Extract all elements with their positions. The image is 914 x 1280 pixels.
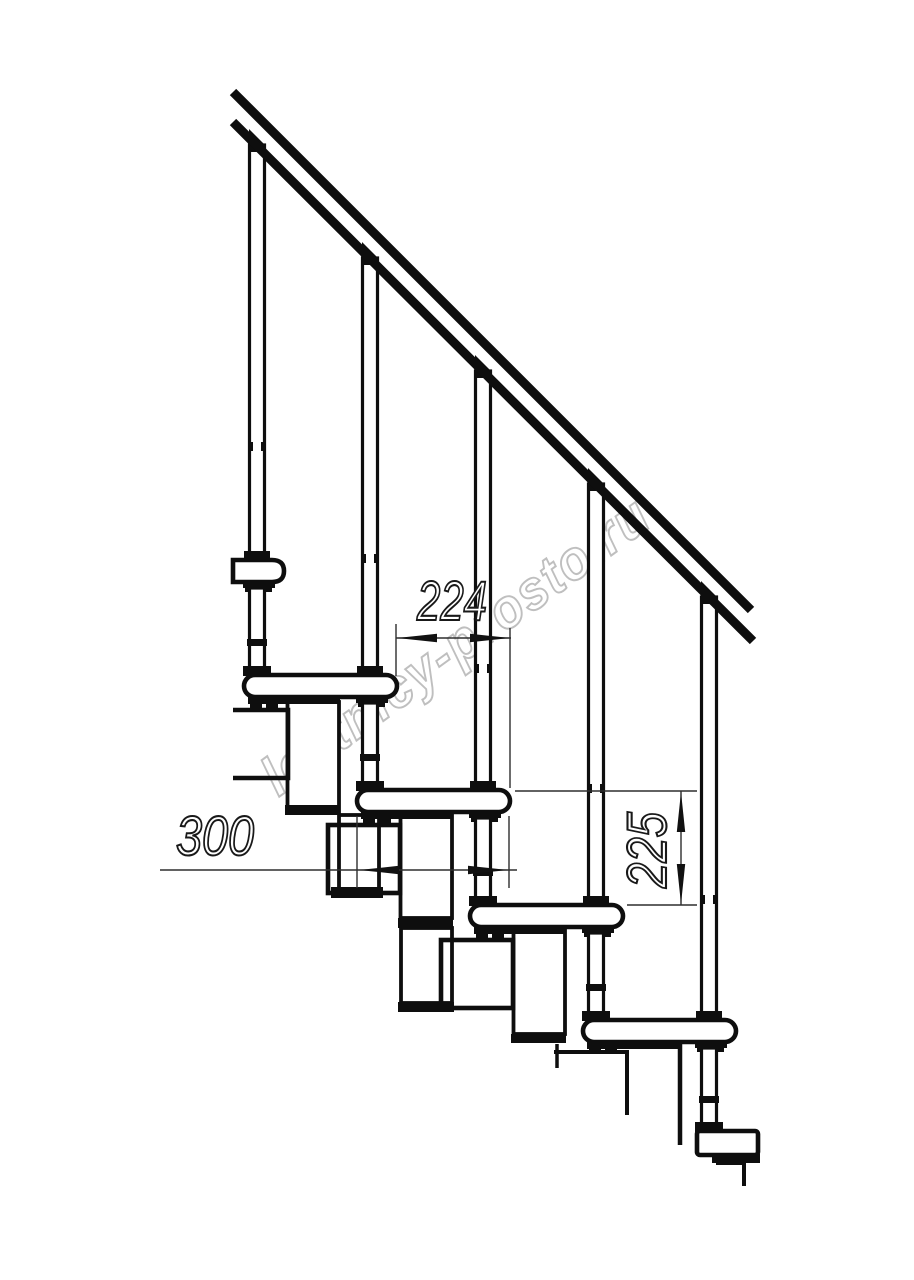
module-4-pipe-bar [511, 1034, 566, 1043]
staircase-technical-drawing: lestnicy-prosto.ru [0, 0, 914, 1280]
connector-tube-1-collar [247, 639, 267, 646]
tread-2-tail-nub [266, 703, 278, 709]
connector-tube-5-collar [699, 1096, 719, 1103]
floor-edge-line [716, 1163, 744, 1186]
handrail [233, 92, 753, 641]
baluster-2-foot [357, 666, 383, 676]
tread-5-plate [587, 1041, 679, 1049]
module-3-pipe-upper [401, 814, 453, 918]
tread-2-plate [248, 696, 340, 704]
connector-tube-3-foot [469, 896, 497, 906]
connector-tube-1 [250, 588, 265, 668]
tread-3 [357, 790, 510, 812]
connector-tube-2-foot [356, 781, 384, 791]
tread-3-tail-nub [379, 818, 391, 824]
tread-2 [244, 675, 397, 697]
module-5-box-top-partial [554, 1052, 627, 1115]
baluster-3-joint-core [479, 662, 487, 675]
dimension-225: 225 [515, 791, 697, 905]
baluster-2-joint-core [366, 552, 374, 565]
connector-tube-4-collar [586, 984, 606, 991]
module-2-pipe-bar [285, 805, 340, 815]
tread-5-tail-nub [605, 1048, 617, 1054]
baluster-3-foot [470, 781, 496, 791]
connector-tube-2-collar [360, 754, 380, 761]
dim-225-arrow-bottom [677, 864, 685, 904]
connector-tube-5 [702, 1048, 717, 1124]
module-4-pipe-upper [514, 929, 566, 1034]
connector-tube-3 [476, 818, 491, 898]
tread-4-tail-nub [492, 933, 504, 939]
baluster-5 [702, 597, 717, 1020]
baluster-2 [363, 258, 378, 675]
dim-225-arrow-top [677, 792, 685, 832]
dim-224-label: 224 [416, 569, 487, 632]
tread-4-plate [474, 926, 566, 934]
baluster-5-foot [696, 1011, 722, 1021]
floor-mount-block [697, 1131, 758, 1155]
connector-tube-4 [589, 933, 604, 1013]
module-2-pipe-upper [288, 702, 340, 813]
baluster-4-joint-core [592, 782, 600, 795]
dim-225-label: 225 [615, 811, 678, 889]
baluster-5-joint-core [705, 893, 713, 906]
tread-1 [233, 560, 284, 582]
tread-5-tail-nub [589, 1048, 601, 1054]
baluster-4 [589, 484, 604, 905]
tread-4-tail-nub [476, 933, 488, 939]
baluster-4-foot [583, 896, 609, 906]
tread-3-tail-nub [363, 818, 375, 824]
baluster-1-joint-core [253, 440, 261, 453]
drawing-page: lestnicy-prosto.ru [0, 0, 914, 1280]
connector-tube-1-foot [243, 666, 271, 676]
tread-3-plate [361, 811, 453, 819]
tread-2-tail-nub [250, 703, 262, 709]
baluster-1-foot [244, 551, 270, 561]
connector-tube-4-foot [582, 1011, 610, 1021]
tread-5 [583, 1020, 736, 1042]
dim-300-label: 300 [176, 804, 254, 867]
baluster-1 [250, 145, 265, 560]
floor-mount [697, 1131, 760, 1186]
connector-tube-2 [363, 703, 378, 783]
handrail-bottom-line [233, 122, 753, 641]
tread-4 [470, 905, 623, 927]
